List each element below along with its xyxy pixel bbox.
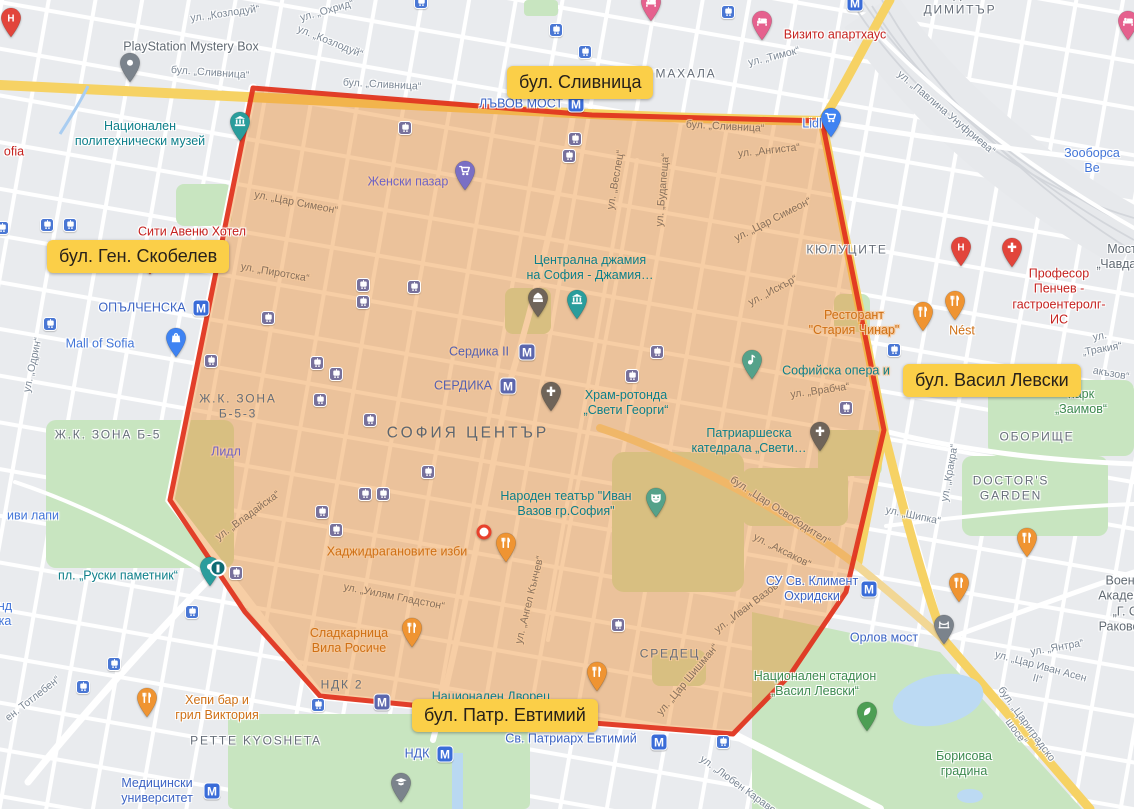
- map-label[interactable]: НДК: [405, 746, 430, 761]
- map-label[interactable]: Зооборса Ве: [1064, 146, 1120, 177]
- map-label[interactable]: Борисова градина: [936, 749, 992, 780]
- map-label[interactable]: Сердика II: [449, 344, 509, 359]
- map-label[interactable]: Ресторант "Стария Чинар": [809, 308, 900, 339]
- tram-icon[interactable]: [562, 149, 576, 163]
- map-label[interactable]: Национален стадион „Васил Левски“: [754, 669, 876, 700]
- map-label[interactable]: Св. Патриарх Евтимий: [505, 731, 636, 746]
- map-label[interactable]: СУ Св. Климент Охридски: [766, 574, 858, 605]
- map-label[interactable]: Mall of Sofia: [66, 336, 135, 351]
- tram-icon[interactable]: [43, 317, 57, 331]
- tram-icon[interactable]: [40, 218, 54, 232]
- map-canvas[interactable]: ул. „Козлодуй“ул. „Охрид“ул. „Козлодуй“б…: [0, 0, 1134, 809]
- map-label: Ж.К. ЗОНА Б-5: [55, 428, 161, 443]
- tram-icon[interactable]: [414, 0, 428, 9]
- museum-pin[interactable]: [229, 111, 252, 147]
- tram-icon[interactable]: [329, 523, 343, 537]
- clinic-pin[interactable]: [1001, 237, 1024, 273]
- metro-icon[interactable]: М: [374, 694, 391, 711]
- road-badge: бул. Сливница: [507, 66, 653, 99]
- road-badge: бул. Патр. Евтимий: [412, 699, 598, 732]
- cart-blue-pin[interactable]: [820, 107, 843, 143]
- map-label[interactable]: Военна Академия „Г. С. Раковски“: [1098, 574, 1134, 635]
- restaurant-pin[interactable]: [1016, 527, 1039, 563]
- tram-icon[interactable]: [839, 401, 853, 415]
- bag-pin[interactable]: [165, 327, 188, 363]
- map-label[interactable]: Орлов мост: [850, 630, 918, 645]
- map-label[interactable]: Женски пазар: [368, 174, 449, 189]
- hospital-pin[interactable]: H: [950, 236, 973, 272]
- tram-icon[interactable]: [578, 45, 592, 59]
- restaurant-pin[interactable]: [401, 617, 424, 653]
- tram-icon[interactable]: [185, 605, 199, 619]
- tram-icon[interactable]: [568, 132, 582, 146]
- tram-icon[interactable]: [329, 367, 343, 381]
- hotel-pin[interactable]: [1117, 10, 1134, 46]
- hospital-pin[interactable]: H: [0, 7, 23, 43]
- tram-icon[interactable]: [76, 680, 90, 694]
- metro-icon[interactable]: М: [651, 734, 668, 751]
- hotel-pin[interactable]: [751, 10, 774, 46]
- map-label: DOCTOR'S GARDEN: [973, 473, 1049, 502]
- map-label[interactable]: Професор Пенчев - гастроентеролг- ИС: [1012, 267, 1105, 328]
- map-label[interactable]: Софийска опера и: [782, 363, 890, 378]
- metro-icon[interactable]: М: [861, 581, 878, 598]
- tram-icon[interactable]: [398, 121, 412, 135]
- map-label: СРЕДЕЦ: [640, 647, 700, 662]
- map-label: НДК 2: [321, 678, 364, 693]
- map-label[interactable]: СЕРДИКА: [434, 378, 492, 393]
- tram-icon[interactable]: [650, 345, 664, 359]
- restaurant-pin[interactable]: [495, 532, 518, 568]
- monument-icon[interactable]: [210, 560, 227, 577]
- location-marker: [477, 525, 492, 540]
- tram-icon[interactable]: [0, 221, 9, 235]
- church-pin[interactable]: [809, 421, 832, 457]
- map-label: Ж.К. ЗОНА Б-5-3: [199, 391, 276, 420]
- tram-icon[interactable]: [716, 735, 730, 749]
- tram-icon[interactable]: [204, 354, 218, 368]
- map-label[interactable]: Сити Авеню Хотел: [138, 224, 246, 239]
- music-pin[interactable]: [741, 349, 764, 385]
- map-label: КЮЛУЦИТЕ: [806, 243, 887, 258]
- metro-icon[interactable]: М: [437, 746, 454, 763]
- cart-pin[interactable]: [454, 160, 477, 196]
- restaurant-pin[interactable]: [948, 572, 971, 608]
- tram-icon[interactable]: [611, 618, 625, 632]
- tram-icon[interactable]: [549, 23, 563, 37]
- map-label[interactable]: Сладкарница Вила Росиче: [310, 626, 388, 657]
- tram-icon[interactable]: [261, 311, 275, 325]
- map-label[interactable]: PlayStation Mystery Box: [123, 39, 258, 54]
- theater-pin[interactable]: [645, 487, 668, 523]
- map-label[interactable]: Централна джамия на София - Джамия…: [526, 253, 653, 284]
- restaurant-pin[interactable]: [944, 290, 967, 326]
- metro-icon[interactable]: М: [847, 0, 864, 12]
- tram-icon[interactable]: [313, 393, 327, 407]
- map-label[interactable]: иви лапи: [7, 508, 59, 523]
- svg-text:H: H: [7, 14, 14, 25]
- map-label: МАХАЛА: [656, 67, 717, 82]
- dot-gray-pin[interactable]: [119, 52, 142, 88]
- tram-icon[interactable]: [311, 698, 325, 712]
- tram-icon[interactable]: [358, 487, 372, 501]
- bridge-pin[interactable]: [933, 614, 956, 650]
- tram-icon[interactable]: [721, 5, 735, 19]
- tram-icon[interactable]: [356, 278, 370, 292]
- restaurant-pin[interactable]: [586, 661, 609, 697]
- map-label: СОФИЯ ЦЕНТЪР: [387, 425, 549, 444]
- hotel-pin[interactable]: [640, 0, 663, 27]
- map-label[interactable]: пл. „Руски паметник“: [58, 568, 178, 583]
- tram-icon[interactable]: [363, 413, 377, 427]
- tram-icon[interactable]: [310, 356, 324, 370]
- tram-icon[interactable]: [625, 369, 639, 383]
- tram-icon[interactable]: [421, 465, 435, 479]
- museum-pin[interactable]: [566, 289, 589, 325]
- map-label[interactable]: нд ка: [0, 599, 12, 630]
- metro-icon[interactable]: М: [500, 378, 517, 395]
- map-label: ХАДЖИ ДИМИТЪР: [924, 0, 997, 17]
- map-label[interactable]: Хепи бар и грил Виктория: [175, 693, 258, 724]
- map-label[interactable]: Визито апартхаус: [784, 27, 886, 42]
- map-label[interactable]: ofia: [4, 144, 24, 159]
- tram-icon[interactable]: [229, 566, 243, 580]
- map-label[interactable]: Медицински университет: [121, 776, 193, 807]
- map-label: PETTE KYOSHETA: [190, 734, 322, 749]
- map-label[interactable]: Храм-ротонда „Свети Георги“: [584, 388, 669, 419]
- metro-icon[interactable]: М: [204, 783, 221, 800]
- grad-pin[interactable]: [390, 772, 413, 808]
- park-pin[interactable]: [856, 701, 879, 737]
- map-label[interactable]: Патриаршеска катедрала „Свети…: [691, 426, 806, 457]
- restaurant-pin[interactable]: [136, 687, 159, 723]
- map-label[interactable]: Лидл: [211, 444, 241, 459]
- tram-icon[interactable]: [315, 505, 329, 519]
- restaurant-pin[interactable]: [912, 301, 935, 337]
- map-label[interactable]: Народен театър "Иван Вазов гр.София": [500, 489, 631, 520]
- tram-icon[interactable]: [356, 295, 370, 309]
- map-label[interactable]: ОПЪЛЧЕНСКА: [98, 300, 185, 315]
- mosque-pin[interactable]: [527, 287, 550, 323]
- road-badge: бул. Васил Левски: [903, 364, 1081, 397]
- church-pin[interactable]: [540, 381, 563, 417]
- svg-text:H: H: [957, 243, 964, 254]
- tram-icon[interactable]: [107, 657, 121, 671]
- metro-icon[interactable]: М: [193, 300, 210, 317]
- map-label[interactable]: Национален политехнически музей: [75, 119, 205, 150]
- road-badge: бул. Ген. Скобелев: [47, 240, 229, 273]
- map-label[interactable]: Хаджидрагановите изби: [327, 544, 468, 559]
- tram-icon[interactable]: [407, 280, 421, 294]
- tram-icon[interactable]: [887, 343, 901, 357]
- metro-icon[interactable]: М: [519, 344, 536, 361]
- tram-icon[interactable]: [63, 218, 77, 232]
- tram-icon[interactable]: [376, 487, 390, 501]
- map-label: ОБОРИЩЕ: [1000, 430, 1075, 445]
